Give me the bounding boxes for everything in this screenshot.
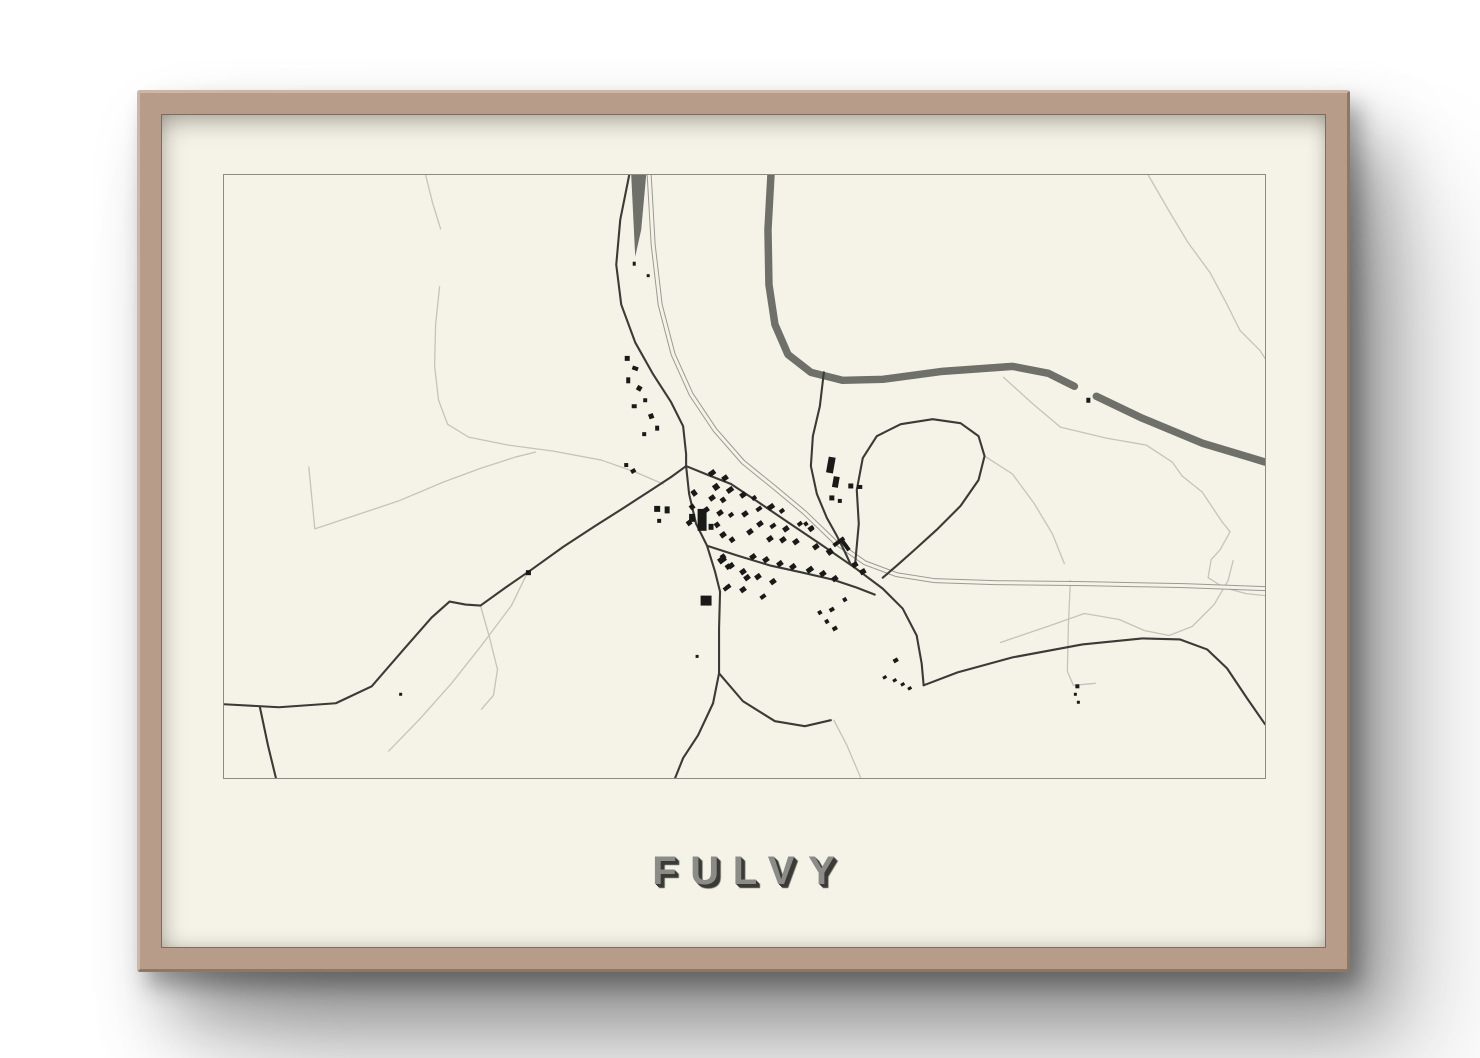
- building-footprint: [779, 508, 785, 514]
- building-footprint: [797, 521, 803, 527]
- building-footprint: [728, 512, 734, 518]
- building-footprint: [792, 538, 800, 546]
- building-footprint: [723, 584, 732, 592]
- building-footprint: [769, 578, 777, 586]
- building-footprint: [689, 503, 696, 510]
- building-footprint: [633, 262, 636, 266]
- building-footprint: [859, 568, 867, 575]
- building-footprint: [726, 486, 735, 494]
- building-footprint: [838, 499, 842, 503]
- building-footprint: [625, 356, 630, 361]
- building-footprint: [857, 485, 862, 489]
- building-footprint: [624, 463, 628, 467]
- poster-title: FULVY: [162, 851, 1325, 891]
- map-panel: [223, 174, 1266, 779]
- building-footprint: [1077, 701, 1080, 704]
- building-footprint: [719, 531, 727, 539]
- building-footprint: [779, 536, 787, 544]
- building-footprint: [712, 483, 720, 491]
- building-footprint: [643, 398, 647, 402]
- building-footprint: [829, 607, 835, 613]
- building-footprint: [709, 524, 714, 530]
- building-footprint: [892, 678, 897, 683]
- building-footprint: [690, 489, 698, 497]
- building-footprint: [754, 573, 762, 581]
- map-buildings: [399, 262, 1090, 704]
- building-footprint: [1086, 398, 1090, 403]
- building-footprint: [746, 528, 754, 536]
- building-footprint: [907, 686, 912, 691]
- building-footprint: [716, 509, 724, 517]
- building-footprint: [769, 522, 776, 529]
- building-footprint: [803, 521, 809, 527]
- building-footprint: [848, 483, 853, 488]
- map-svg: [224, 175, 1265, 778]
- map-highway-stub: [631, 175, 646, 257]
- building-footprint: [893, 657, 899, 663]
- building-footprint: [766, 535, 774, 543]
- building-footprint: [755, 506, 762, 513]
- building-footprint: [739, 568, 747, 576]
- building-footprint: [630, 468, 636, 474]
- building-footprint: [714, 521, 721, 528]
- building-footprint: [741, 510, 749, 518]
- building-footprint: [743, 574, 751, 582]
- building-footprint: [526, 570, 531, 575]
- building-footprint: [632, 404, 637, 408]
- building-footprint: [720, 496, 727, 503]
- building-footprint: [817, 610, 822, 615]
- building-footprint: [654, 506, 660, 512]
- building-footprint: [696, 655, 699, 658]
- building-footprint: [851, 561, 859, 568]
- building-footprint: [1075, 684, 1079, 688]
- building-footprint: [756, 520, 764, 528]
- map-footpaths: [309, 175, 1265, 778]
- building-footprint: [739, 586, 747, 594]
- building-footprint: [632, 365, 639, 371]
- building-footprint: [657, 519, 661, 523]
- building-footprint: [708, 494, 716, 502]
- building-footprint: [626, 377, 630, 383]
- building-footprint: [701, 596, 712, 606]
- map-roads: [224, 175, 1265, 778]
- building-footprint: [759, 593, 766, 600]
- building-footprint: [648, 413, 654, 419]
- poster-mat: FULVY: [161, 114, 1326, 948]
- map-highway: [768, 175, 1265, 462]
- building-footprint: [829, 495, 834, 500]
- building-footprint: [1074, 693, 1077, 696]
- building-footprint: [832, 626, 838, 632]
- building-footprint: [636, 385, 643, 392]
- building-footprint: [399, 693, 402, 696]
- building-footprint: [729, 536, 736, 543]
- building-footprint: [882, 675, 887, 680]
- page-background: FULVY: [0, 0, 1480, 1058]
- building-footprint: [782, 525, 790, 533]
- poster-frame: FULVY: [137, 90, 1350, 972]
- building-footprint: [642, 432, 646, 436]
- building-footprint: [900, 682, 905, 687]
- building-footprint: [647, 274, 650, 277]
- building-footprint: [665, 506, 670, 513]
- map-railway: [649, 175, 1265, 589]
- building-footprint: [832, 476, 840, 488]
- building-footprint: [739, 491, 747, 499]
- building-footprint: [807, 525, 814, 532]
- building-footprint: [655, 426, 659, 431]
- building-footprint: [842, 597, 847, 602]
- building-footprint: [826, 457, 836, 474]
- building-footprint: [824, 619, 829, 624]
